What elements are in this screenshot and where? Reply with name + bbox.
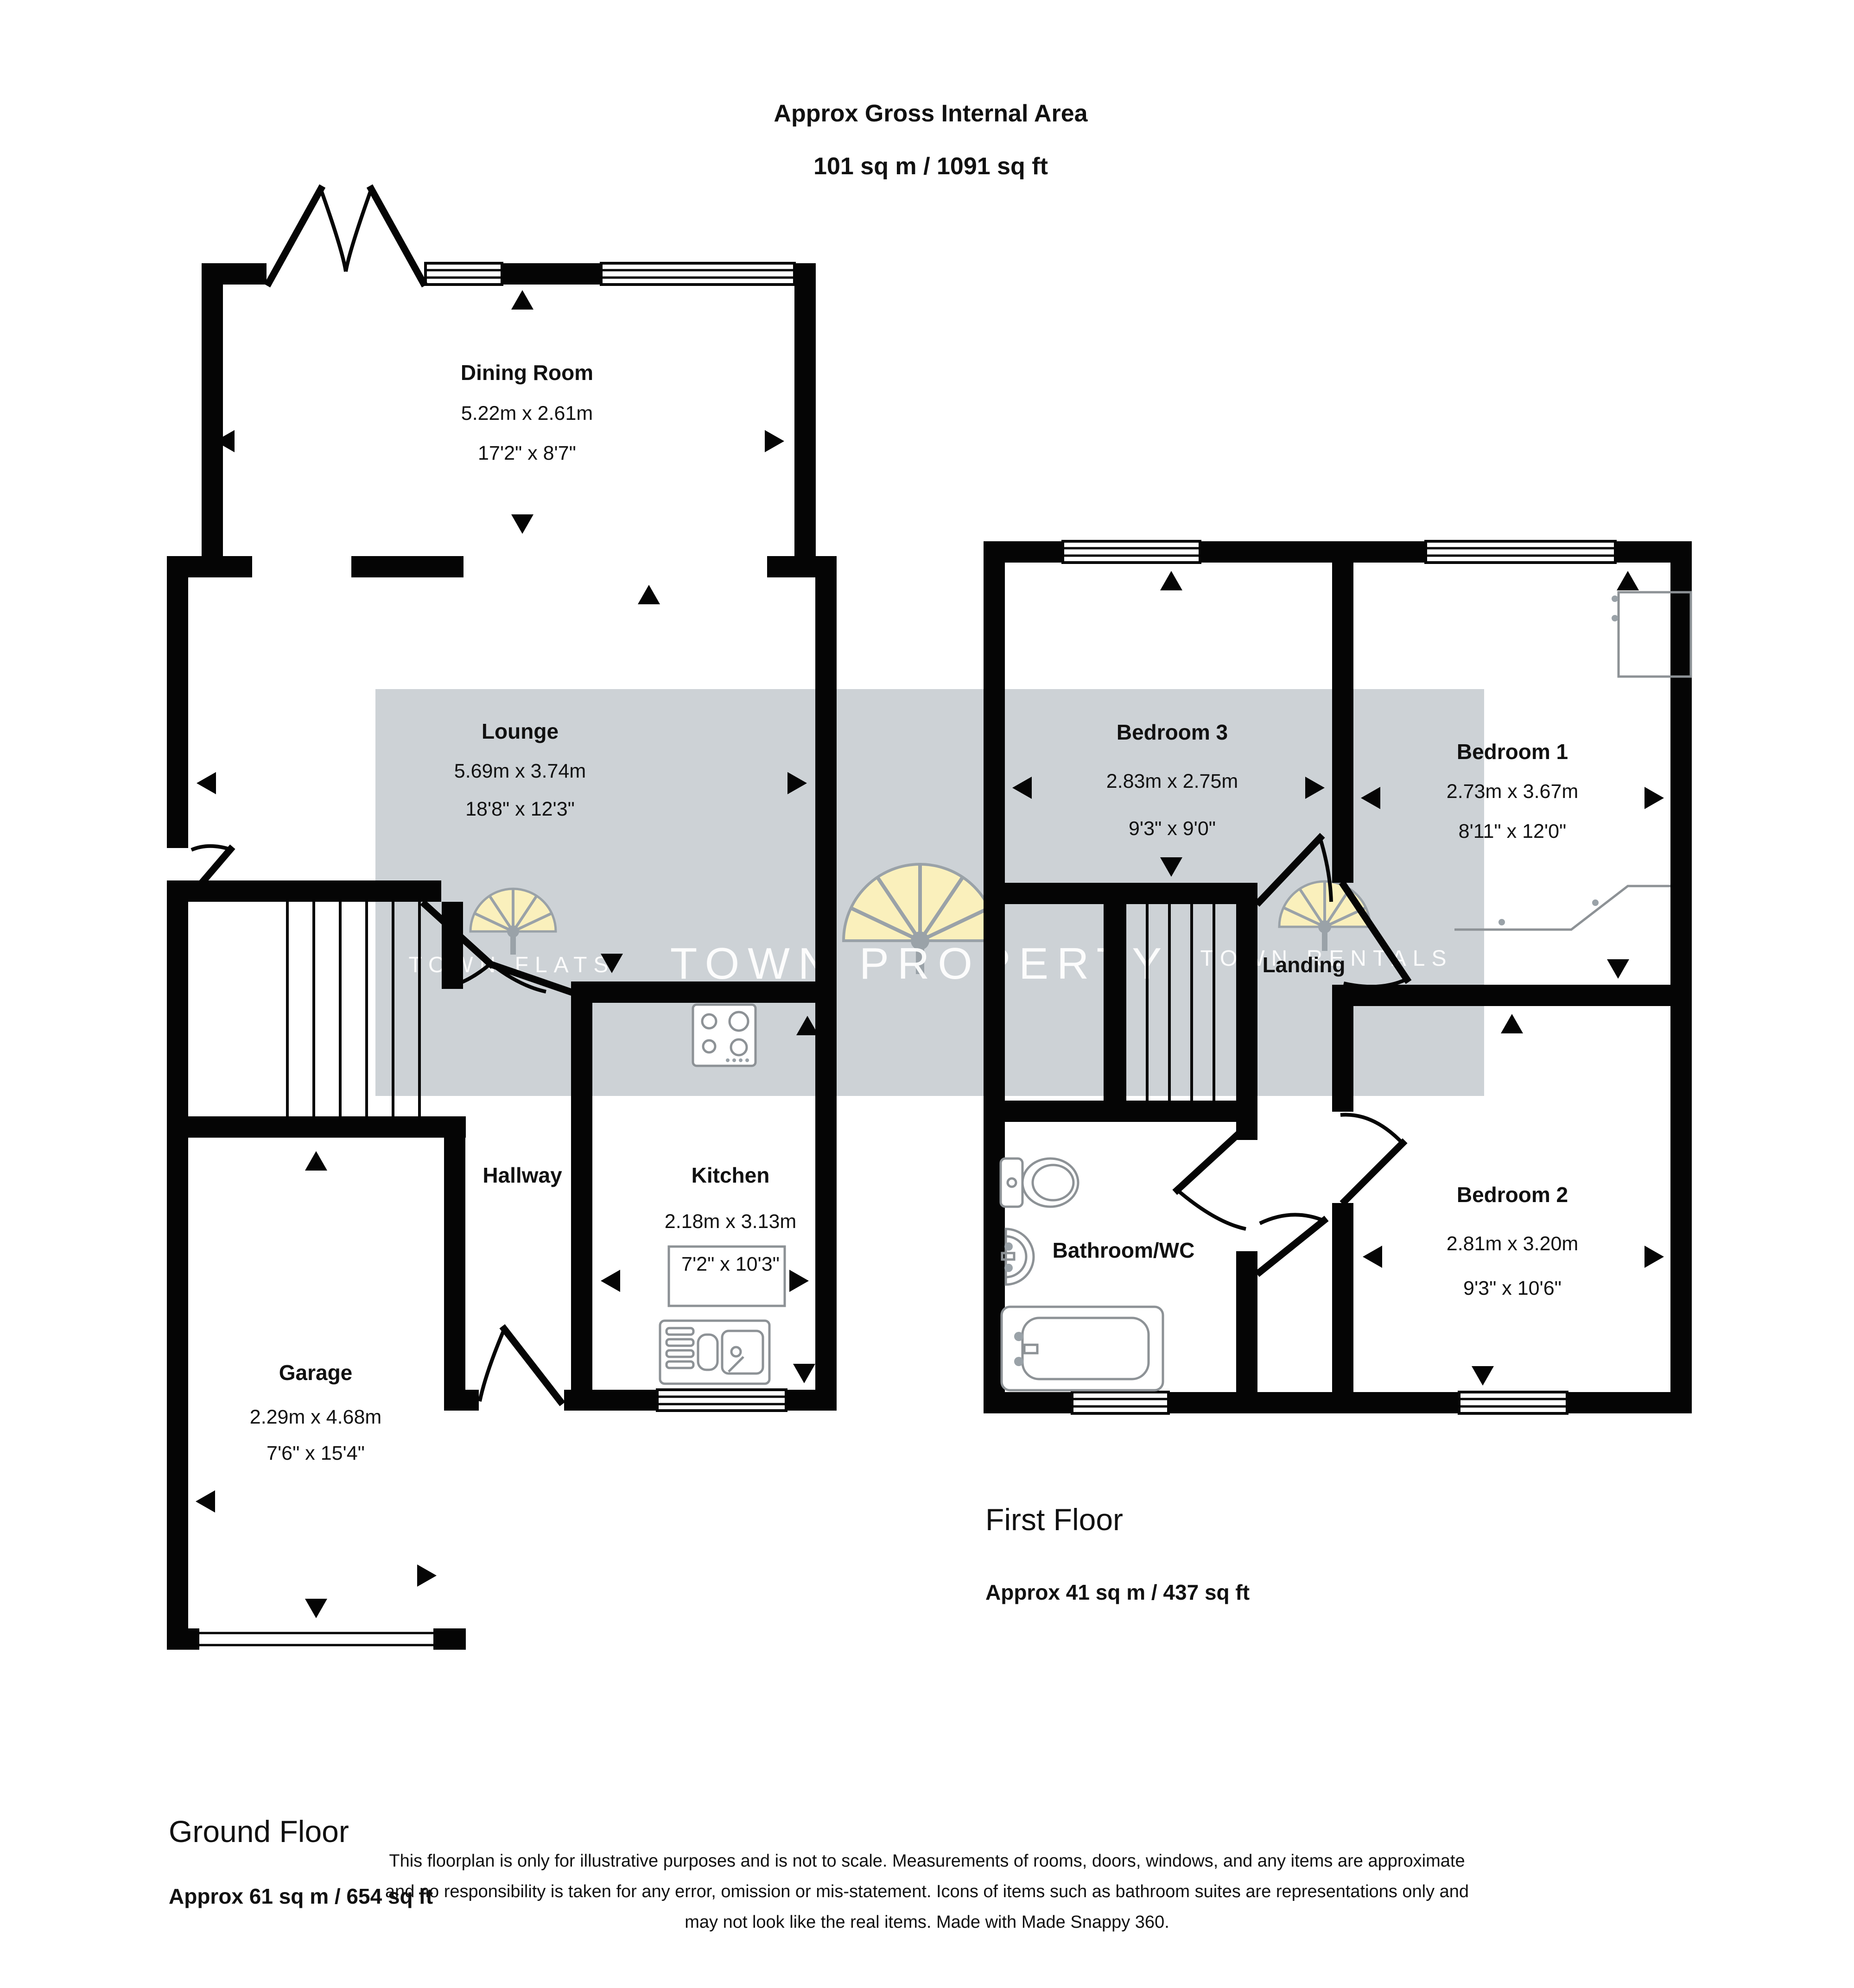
bedroom2-imperial: 9'3" x 10'6" <box>1463 1277 1562 1299</box>
bedroom2-metric: 2.81m x 3.20m <box>1447 1233 1578 1255</box>
measure-arrow-down <box>1607 959 1629 979</box>
bathroom-label: Bathroom/WC <box>1053 1238 1195 1262</box>
kitchen-window <box>657 1390 786 1411</box>
title-line-2: 101 sq m / 1091 sq ft <box>813 153 1048 180</box>
hallway-label: Hallway <box>483 1163 562 1187</box>
measure-arrow-down <box>1472 1366 1494 1386</box>
disclaimer: This floorplan is only for illustrative … <box>385 1851 1469 1932</box>
bedroom3-label: Bedroom 3 <box>1117 720 1228 744</box>
measure-arrow-right <box>1644 1246 1664 1268</box>
measure-arrow-right <box>765 430 784 452</box>
lounge-label: Lounge <box>482 719 559 743</box>
french-doors-icon <box>269 189 423 283</box>
ground-floor-title: Ground Floor <box>169 1814 349 1849</box>
garage-imperial: 7'6" x 15'4" <box>267 1442 365 1464</box>
dining-window-right <box>601 263 794 285</box>
measure-arrow-right <box>1644 787 1664 809</box>
basin-icon <box>1002 1229 1034 1285</box>
disclaimer-line-3: may not look like the real items. Made w… <box>685 1912 1169 1932</box>
landing-label: Landing <box>1263 953 1346 977</box>
bathroom-window <box>1072 1392 1168 1413</box>
lounge-imperial: 18'8" x 12'3" <box>465 798 575 820</box>
cupboard-door-icon <box>1260 1215 1324 1272</box>
title-line-1: Approx Gross Internal Area <box>774 100 1088 127</box>
dining-room-label: Dining Room <box>461 361 593 385</box>
dining-room-imperial: 17'2" x 8'7" <box>478 442 576 464</box>
bedroom2-window <box>1459 1392 1567 1413</box>
measure-arrow-up <box>638 585 660 604</box>
kitchen-imperial: 7'2" x 10'3" <box>681 1253 780 1275</box>
measure-arrow-left <box>601 1270 620 1292</box>
back-door-icon <box>480 1329 560 1401</box>
measure-arrow-down <box>511 514 533 534</box>
floorplan-page: Approx Gross Internal Area 101 sq m / 10… <box>0 0 1854 1988</box>
measure-arrow-left <box>197 772 216 794</box>
garage-metric: 2.29m x 4.68m <box>250 1406 381 1428</box>
bedroom2-label: Bedroom 2 <box>1457 1183 1568 1207</box>
watermark-town-property: TOWN PROPERTY <box>670 939 1170 988</box>
bedroom3-window <box>1063 541 1200 563</box>
disclaimer-line-2: and no responsibility is taken for any e… <box>385 1882 1469 1901</box>
measure-arrow-up <box>1160 571 1182 590</box>
kitchen-sink-icon <box>660 1321 769 1384</box>
measure-arrow-up <box>1501 1014 1523 1033</box>
floorplan-canvas: Approx Gross Internal Area 101 sq m / 10… <box>0 0 1854 1988</box>
disclaimer-line-1: This floorplan is only for illustrative … <box>389 1851 1465 1871</box>
measure-arrow-left <box>1363 1246 1382 1268</box>
hob-icon <box>693 1005 756 1066</box>
measure-arrow-right <box>789 1270 809 1292</box>
measure-arrow-right <box>417 1564 437 1587</box>
floor-titles: First Floor Approx 41 sq m / 437 sq ft G… <box>169 1502 1250 1908</box>
first-floor-area: Approx 41 sq m / 437 sq ft <box>985 1580 1250 1604</box>
measure-arrow-down <box>305 1599 327 1618</box>
corner-wardrobe-icon <box>1454 886 1670 930</box>
bedroom3-metric: 2.83m x 2.75m <box>1106 770 1238 792</box>
first-floor-title: First Floor <box>985 1502 1123 1537</box>
dining-window-left <box>425 263 502 285</box>
kitchen-metric: 2.18m x 3.13m <box>665 1210 796 1233</box>
bathroom-door-icon <box>1177 1127 1246 1229</box>
measure-arrow-up <box>305 1151 327 1171</box>
measure-arrow-down <box>793 1364 815 1383</box>
bedroom1-metric: 2.73m x 3.67m <box>1447 780 1578 803</box>
toilet-icon <box>1001 1159 1078 1207</box>
bathtub-icon <box>1002 1307 1163 1390</box>
bedroom1-label: Bedroom 1 <box>1457 740 1568 764</box>
bedroom1-window <box>1426 541 1615 563</box>
garage-label: Garage <box>279 1361 353 1385</box>
bedroom2-door-icon <box>1340 1115 1403 1201</box>
page-title: Approx Gross Internal Area 101 sq m / 10… <box>774 100 1088 180</box>
measure-arrow-left <box>196 1490 215 1513</box>
measure-arrow-up <box>1617 571 1639 590</box>
measure-arrow-up <box>511 290 533 310</box>
bedroom3-imperial: 9'3" x 9'0" <box>1129 817 1216 840</box>
bedroom1-imperial: 8'11" x 12'0" <box>1459 820 1567 842</box>
garage-door-icon <box>199 1633 433 1645</box>
lounge-metric: 5.69m x 3.74m <box>454 760 586 782</box>
dining-room-metric: 5.22m x 2.61m <box>461 402 593 424</box>
kitchen-label: Kitchen <box>692 1163 770 1187</box>
